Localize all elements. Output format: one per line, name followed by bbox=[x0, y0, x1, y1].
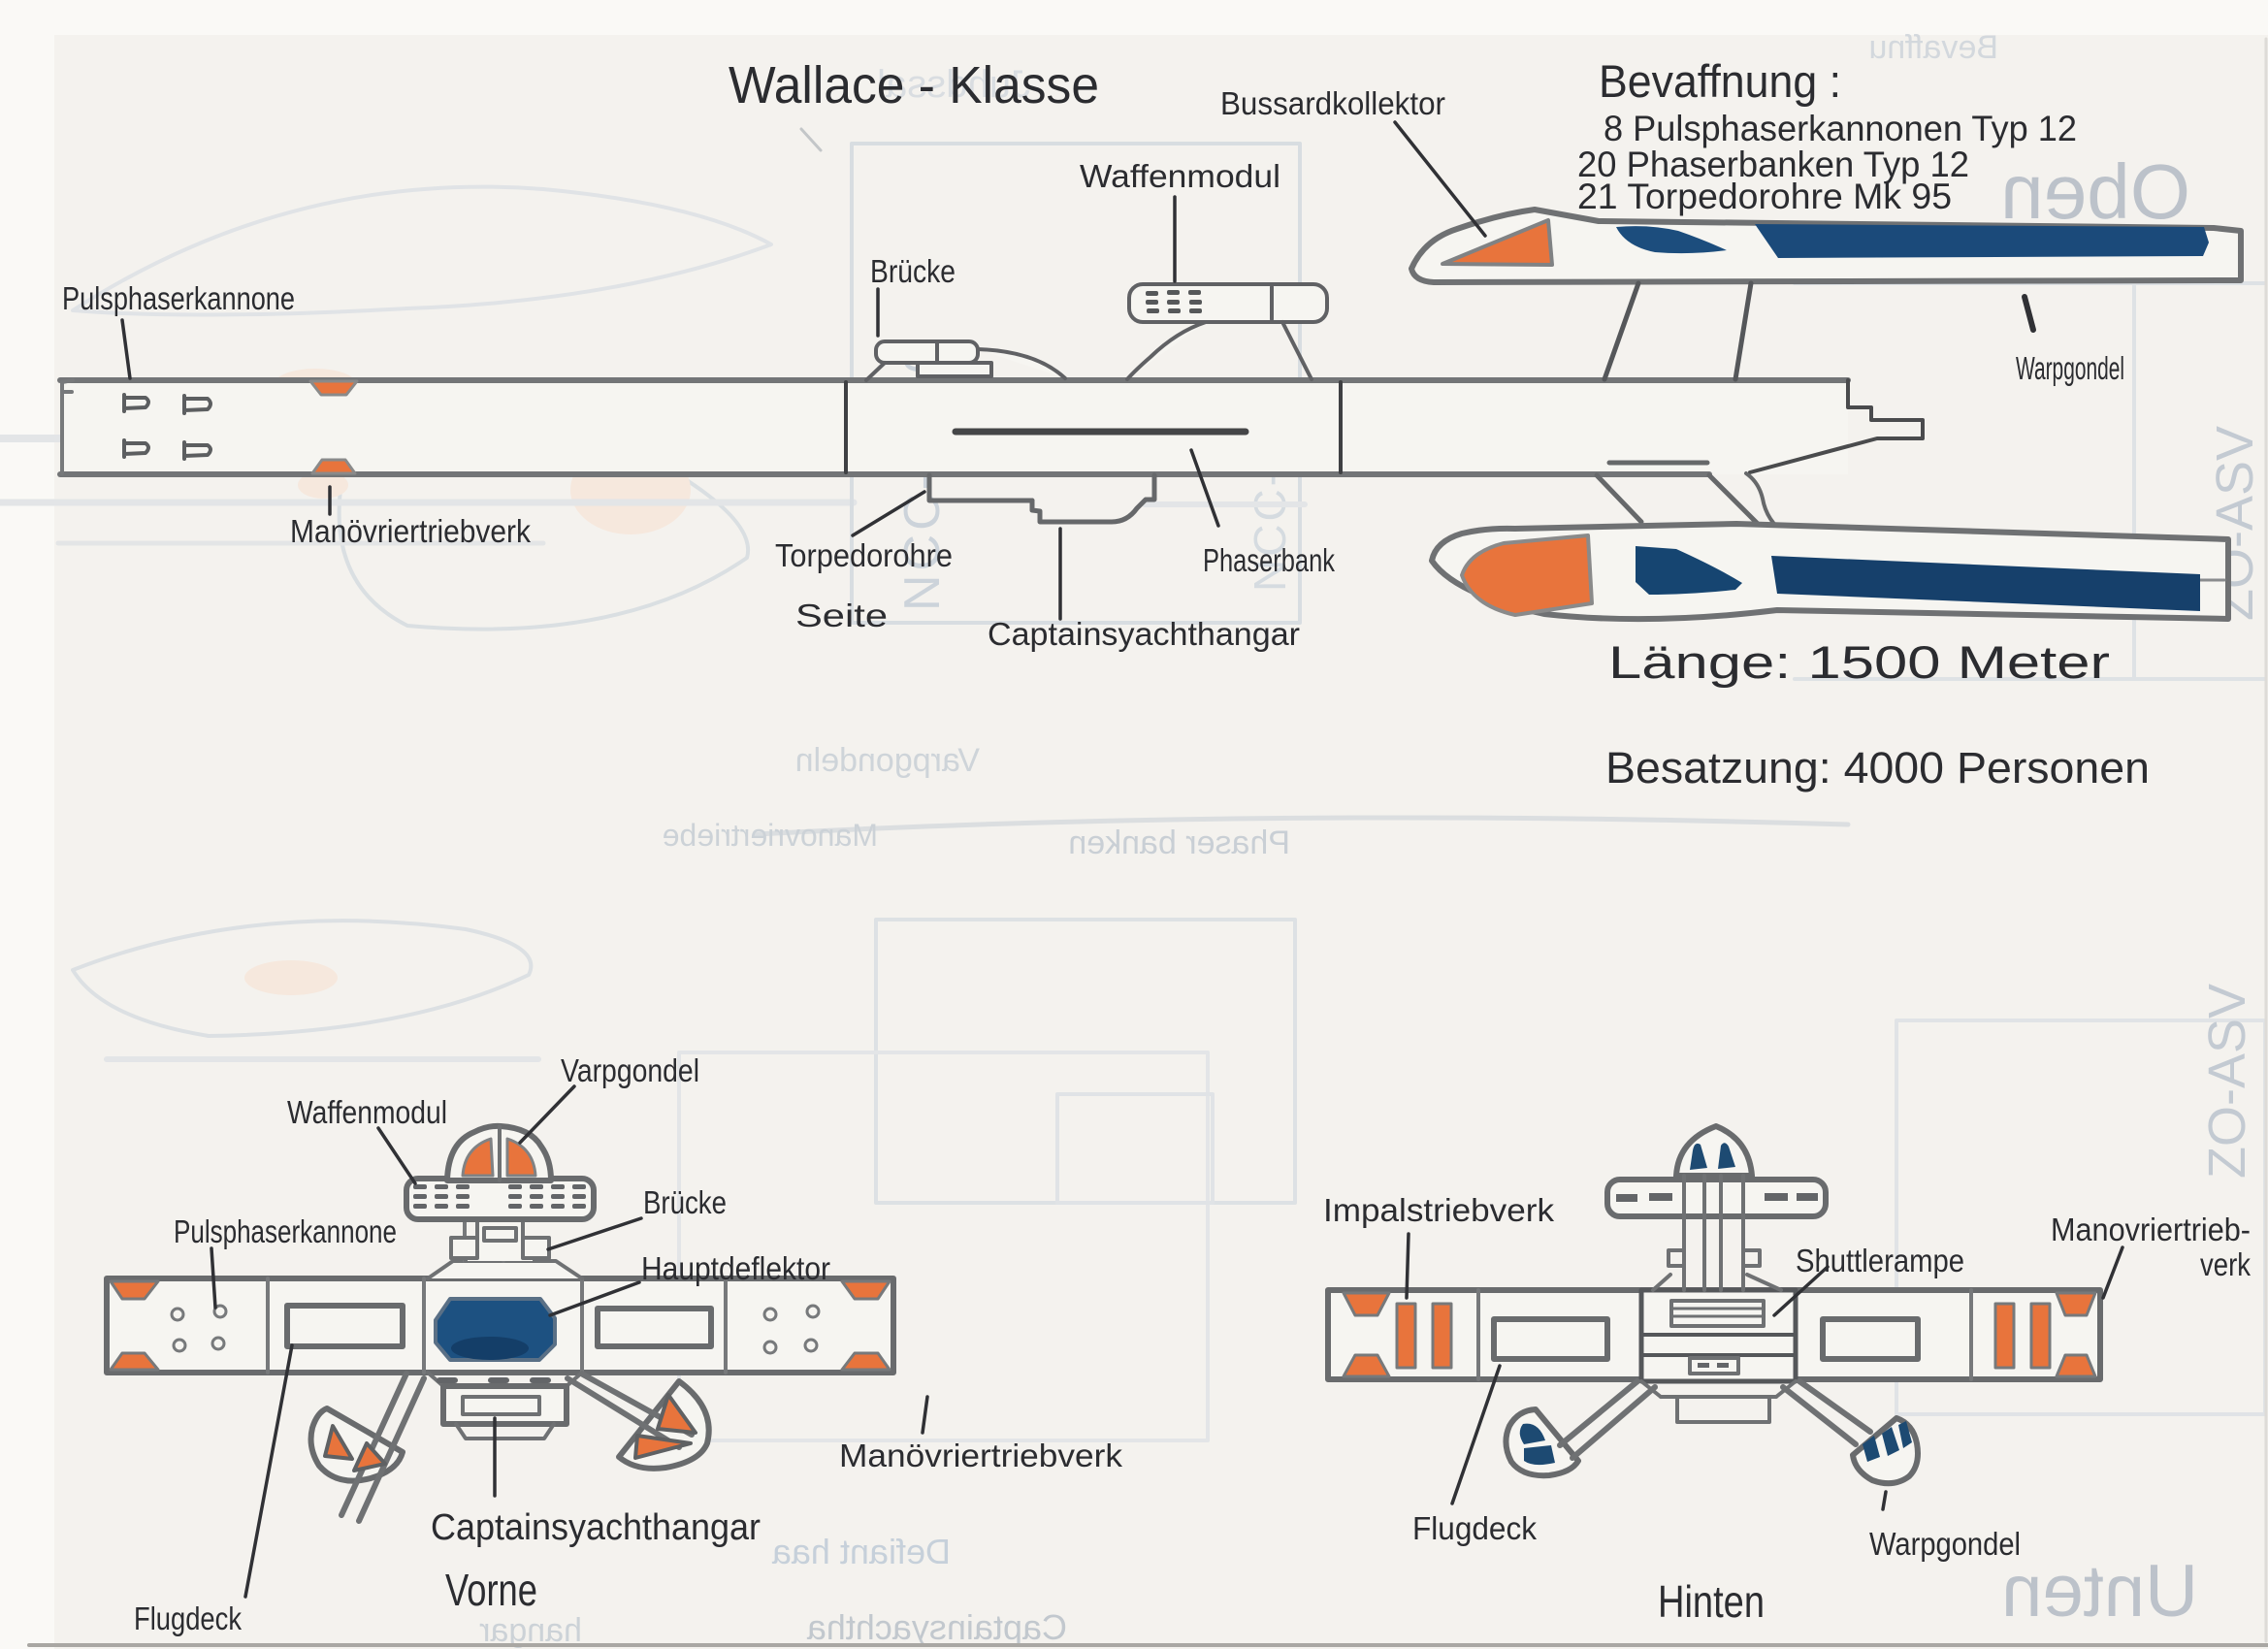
svg-text:Manövriertriebverk: Manövriertriebverk bbox=[290, 513, 531, 549]
svg-text:Warpgondel: Warpgondel bbox=[1869, 1526, 2021, 1562]
svg-text:8 Pulsphaserkannonen Typ 12: 8 Pulsphaserkannonen Typ 12 bbox=[1604, 109, 2077, 148]
svg-text:Vorne: Vorne bbox=[445, 1565, 537, 1615]
svg-text:Captainsyachthangar: Captainsyachthangar bbox=[988, 616, 1300, 652]
svg-text:Unten: Unten bbox=[2001, 1550, 2198, 1633]
svg-text:Torpedorohre: Torpedorohre bbox=[775, 537, 953, 573]
svg-text:Impalstriebverk: Impalstriebverk bbox=[1323, 1192, 1555, 1228]
svg-text:Defiant haa: Defiant haa bbox=[771, 1532, 951, 1571]
svg-text:Pulsphaserkannone: Pulsphaserkannone bbox=[62, 280, 295, 316]
svg-text:Hinten: Hinten bbox=[1658, 1576, 1765, 1627]
svg-text:Oben: Oben bbox=[2000, 148, 2190, 235]
svg-text:Länge: 1500 Meter: Länge: 1500 Meter bbox=[1608, 636, 2110, 688]
svg-text:Hauptdeflektor: Hauptdeflektor bbox=[641, 1250, 830, 1286]
svg-text:ZO-ASV: ZO-ASV bbox=[2198, 984, 2256, 1179]
svg-text:Waffenmodul: Waffenmodul bbox=[287, 1094, 447, 1130]
svg-text:Flugdeck: Flugdeck bbox=[134, 1600, 242, 1636]
svg-text:Captainsyachtha: Captainsyachtha bbox=[806, 1607, 1067, 1647]
svg-text:Varpgondel: Varpgondel bbox=[561, 1052, 699, 1088]
svg-text:Phaser banken: Phaser banken bbox=[1068, 824, 1290, 861]
svg-text:21 Torpedorohre Mk 95: 21 Torpedorohre Mk 95 bbox=[1577, 177, 1952, 216]
svg-text:Wallace - Klasse: Wallace - Klasse bbox=[729, 56, 1099, 114]
svg-text:Manovriertriebe: Manovriertriebe bbox=[663, 818, 878, 853]
svg-text:Pulsphaserkannone: Pulsphaserkannone bbox=[174, 1213, 397, 1249]
svg-text:Besatzung: 4000 Personen: Besatzung: 4000 Personen bbox=[1605, 743, 2150, 792]
svg-text:Varpgondeln: Varpgondeln bbox=[795, 742, 980, 779]
svg-text:Bussardkollektor: Bussardkollektor bbox=[1220, 85, 1445, 121]
svg-text:Brücke: Brücke bbox=[643, 1184, 727, 1220]
svg-text:Bevaffnu: Bevaffnu bbox=[1868, 29, 1998, 66]
svg-text:Waffenmodul: Waffenmodul bbox=[1080, 158, 1280, 194]
svg-text:Captainsyachthangar: Captainsyachthangar bbox=[431, 1507, 761, 1548]
svg-text:Seite: Seite bbox=[795, 598, 888, 633]
svg-text:Flugdeck: Flugdeck bbox=[1412, 1510, 1537, 1546]
svg-text:Phaserbank: Phaserbank bbox=[1203, 542, 1335, 578]
svg-text:verk: verk bbox=[2200, 1246, 2251, 1282]
svg-text:Shuttlerampe: Shuttlerampe bbox=[1796, 1243, 1964, 1278]
svg-text:Manovriertrieb-: Manovriertrieb- bbox=[2051, 1212, 2251, 1247]
svg-text:Brücke: Brücke bbox=[870, 253, 956, 289]
svg-text:Manövriertriebverk: Manövriertriebverk bbox=[839, 1438, 1123, 1473]
svg-text:Warpgondel: Warpgondel bbox=[2016, 350, 2124, 386]
svg-text:Bevaffnung :: Bevaffnung : bbox=[1599, 55, 1841, 107]
